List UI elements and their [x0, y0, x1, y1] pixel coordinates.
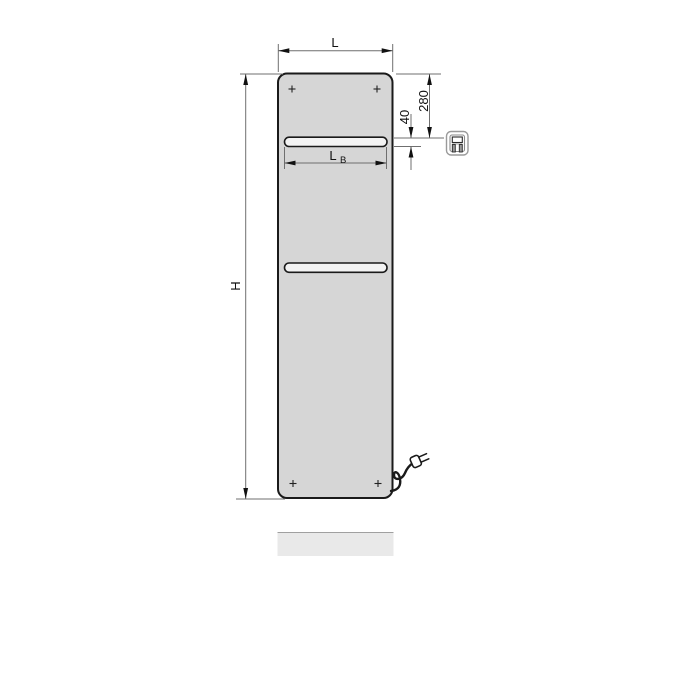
power-cord-assembly — [391, 451, 430, 491]
label-rail-height-40: 40 — [397, 110, 412, 124]
dimension-overall-width: L — [278, 35, 392, 72]
floor-shadow — [278, 533, 394, 557]
electric-control-unit-icon — [447, 132, 469, 156]
power-plug-icon — [409, 451, 429, 468]
radiator-dimension-diagram: L H 280 40 L B — [0, 0, 700, 700]
label-rail-width-subscript: B — [340, 155, 346, 166]
icon-left-bar — [452, 145, 455, 153]
dimension-drawing-canvas: L H 280 40 L B — [0, 0, 700, 700]
label-rail-width: L — [329, 148, 336, 163]
towel-rail-lower — [285, 263, 388, 272]
dimension-top-offset-and-rail-height: 280 40 — [394, 74, 444, 170]
towel-rail-upper — [285, 137, 388, 146]
power-cord — [391, 463, 413, 491]
shadow-bar — [278, 533, 394, 557]
label-top-offset-280: 280 — [416, 90, 431, 112]
label-overall-height: H — [228, 281, 243, 290]
label-overall-width: L — [331, 35, 338, 50]
plug-prong-bottom — [421, 459, 429, 462]
icon-display — [452, 137, 462, 143]
plug-prong-top — [419, 454, 427, 457]
icon-right-bar — [459, 145, 462, 153]
dimension-overall-height: H — [228, 74, 285, 499]
